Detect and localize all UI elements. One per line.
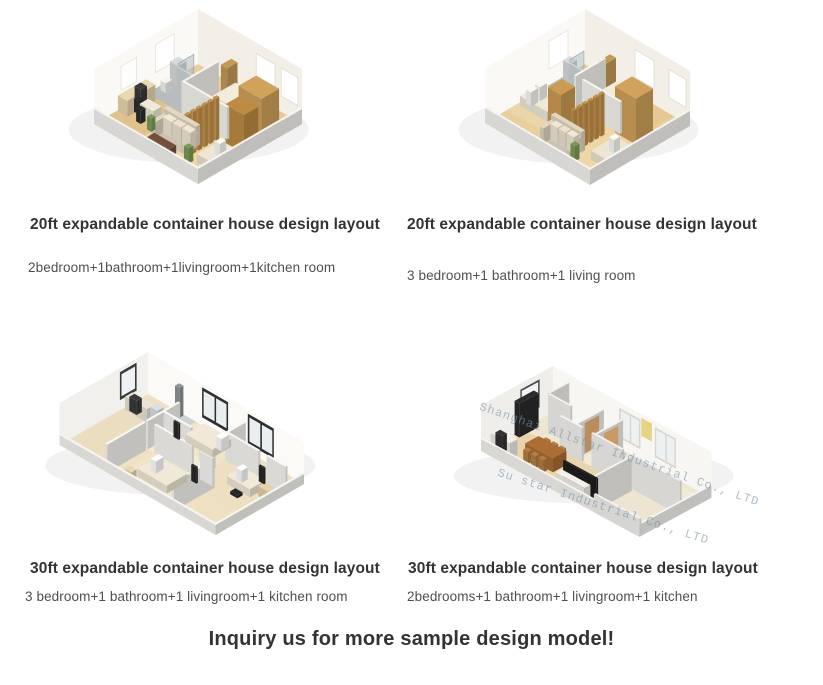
product-description-section: 20ft expandable container house design l… [0, 0, 823, 685]
card-description: 3 bedroom+1 bathroom+1 living room [407, 268, 636, 283]
card-description: 2bedrooms+1 bathroom+1 livingroom+1 kitc… [407, 589, 698, 604]
card-title: 30ft expandable container house design l… [30, 560, 380, 578]
card-description: 2bedroom+1bathroom+1livingroom+1kitchen … [28, 260, 335, 275]
floorplan-image-30ft-3bed [30, 342, 340, 557]
floorplan-image-20ft-2bed [48, 0, 348, 215]
card-title: 20ft expandable container house design l… [407, 216, 757, 234]
card-description: 3 bedroom+1 bathroom+1 livingroom+1 kitc… [25, 589, 348, 604]
card-title: 30ft expandable container house design l… [408, 560, 758, 578]
floorplan-image-30ft-2bed [448, 338, 758, 563]
card-title: 20ft expandable container house design l… [30, 216, 380, 234]
floorplan-image-20ft-3bed [440, 0, 740, 215]
floorplan-image-30ft-2bed-wrapper: Shanghai Allstar Industrial Co., LTD Su … [448, 338, 758, 563]
cta-text: Inquiry us for more sample design model! [0, 628, 823, 651]
